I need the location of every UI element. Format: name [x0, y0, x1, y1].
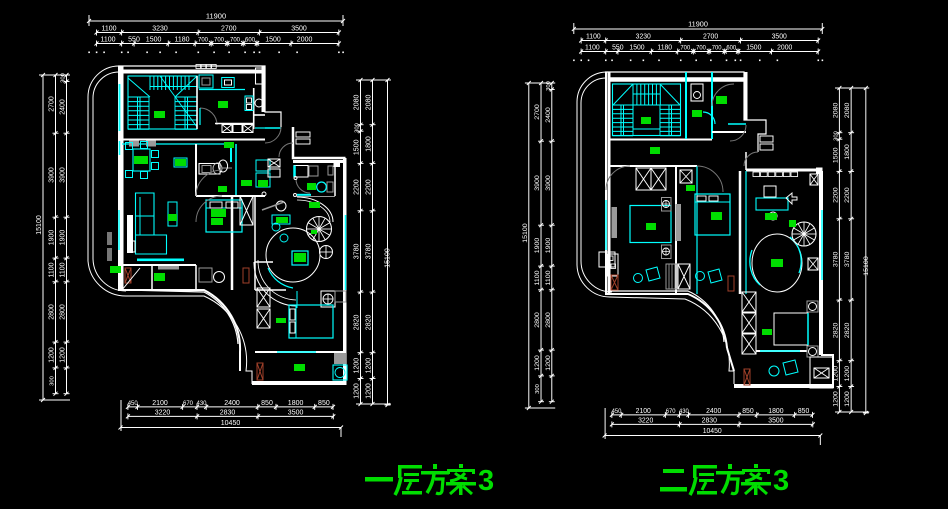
svg-text:700: 700 [696, 46, 706, 52]
svg-text:1100: 1100 [49, 262, 56, 277]
svg-text:15100: 15100 [36, 215, 43, 235]
svg-text:670: 670 [183, 401, 194, 407]
svg-text:3500: 3500 [288, 410, 304, 417]
svg-text:1200: 1200 [534, 355, 541, 371]
svg-text:3780: 3780 [366, 244, 373, 260]
svg-text:2000: 2000 [777, 45, 792, 52]
svg-text:300: 300 [535, 384, 541, 394]
svg-text:2820: 2820 [833, 322, 840, 338]
svg-text:1800: 1800 [768, 408, 783, 415]
svg-text:1100: 1100 [534, 270, 541, 285]
svg-text:430: 430 [679, 409, 689, 415]
svg-text:300: 300 [833, 131, 839, 141]
svg-text:1500: 1500 [354, 139, 361, 155]
svg-text:2100: 2100 [152, 400, 168, 407]
svg-text:450: 450 [612, 409, 622, 415]
svg-text:2100: 2100 [636, 408, 651, 415]
svg-text:3780: 3780 [833, 251, 840, 267]
svg-text:1900: 1900 [60, 230, 67, 246]
svg-text:2000: 2000 [297, 37, 313, 44]
svg-text:2800: 2800 [60, 304, 67, 320]
svg-text:1100: 1100 [100, 37, 115, 44]
svg-text:1500: 1500 [629, 45, 644, 52]
svg-text:1200: 1200 [366, 383, 373, 399]
svg-text:1100: 1100 [586, 34, 601, 41]
svg-text:1900: 1900 [545, 238, 552, 254]
svg-text:2800: 2800 [545, 312, 552, 328]
svg-text:2700: 2700 [49, 96, 56, 112]
svg-text:3900: 3900 [49, 167, 56, 183]
svg-text:1500: 1500 [833, 147, 840, 163]
svg-text:3500: 3500 [291, 26, 307, 33]
svg-text:600: 600 [245, 38, 256, 44]
svg-text:1100: 1100 [60, 262, 67, 277]
svg-text:2820: 2820 [366, 315, 373, 331]
svg-text:1500: 1500 [746, 45, 761, 52]
svg-text:700: 700 [214, 38, 225, 44]
svg-text:300: 300 [50, 376, 56, 386]
svg-text:1100: 1100 [585, 45, 600, 52]
svg-text:1100: 1100 [545, 270, 552, 285]
svg-text:600: 600 [726, 46, 736, 52]
svg-text:3780: 3780 [354, 244, 361, 260]
svg-text:2080: 2080 [354, 95, 361, 111]
svg-text:3780: 3780 [844, 251, 851, 267]
svg-text:10450: 10450 [221, 420, 241, 427]
svg-text:2700: 2700 [703, 34, 718, 41]
svg-text:2700: 2700 [534, 104, 541, 120]
svg-text:3: 3 [478, 465, 494, 497]
svg-text:2080: 2080 [833, 102, 840, 118]
svg-text:2080: 2080 [366, 95, 373, 111]
svg-text:1180: 1180 [174, 37, 189, 44]
svg-text:1200: 1200 [844, 366, 851, 382]
svg-text:3220: 3220 [155, 410, 171, 417]
svg-text:2400: 2400 [224, 400, 240, 407]
svg-text:2830: 2830 [702, 418, 717, 425]
svg-text:1500: 1500 [146, 37, 162, 44]
svg-text:700: 700 [680, 46, 690, 52]
svg-text:3500: 3500 [768, 418, 783, 425]
svg-text:300: 300 [355, 123, 361, 133]
svg-text:1200: 1200 [366, 358, 373, 374]
svg-text:1900: 1900 [534, 238, 541, 254]
svg-text:2830: 2830 [220, 410, 236, 417]
svg-text:3220: 3220 [638, 418, 653, 425]
svg-text:2700: 2700 [221, 26, 237, 33]
svg-text:850: 850 [318, 400, 330, 407]
svg-text:1200: 1200 [354, 383, 361, 399]
svg-text:430: 430 [196, 401, 207, 407]
svg-text:2200: 2200 [844, 187, 851, 203]
svg-text:550: 550 [128, 37, 140, 44]
svg-text:2820: 2820 [844, 322, 851, 338]
svg-text:700: 700 [230, 38, 241, 44]
svg-text:2400: 2400 [545, 107, 552, 123]
svg-text:2400: 2400 [706, 408, 721, 415]
svg-text:2080: 2080 [844, 102, 851, 118]
svg-text:2200: 2200 [833, 187, 840, 203]
svg-text:670: 670 [666, 409, 676, 415]
svg-text:1200: 1200 [60, 347, 67, 363]
svg-text:3900: 3900 [545, 175, 552, 191]
svg-text:2200: 2200 [366, 179, 373, 195]
svg-text:1200: 1200 [49, 347, 56, 363]
svg-text:2800: 2800 [49, 304, 56, 320]
svg-text:10450: 10450 [703, 428, 722, 435]
svg-text:1200: 1200 [844, 391, 851, 407]
svg-text:1180: 1180 [657, 45, 672, 52]
svg-text:2820: 2820 [354, 315, 361, 331]
svg-text:3: 3 [773, 465, 789, 497]
svg-text:11900: 11900 [206, 12, 226, 21]
svg-text:1100: 1100 [101, 26, 116, 33]
svg-text:700: 700 [712, 46, 722, 52]
svg-text:1200: 1200 [354, 358, 361, 374]
svg-text:3230: 3230 [636, 34, 651, 41]
svg-text:1900: 1900 [49, 230, 56, 246]
svg-text:1500: 1500 [265, 37, 281, 44]
svg-text:2400: 2400 [60, 99, 67, 115]
svg-text:15100: 15100 [863, 256, 870, 276]
svg-text:11900: 11900 [688, 19, 708, 28]
svg-text:550: 550 [612, 45, 624, 52]
svg-text:2800: 2800 [534, 312, 541, 328]
svg-text:2200: 2200 [354, 179, 361, 195]
svg-text:15100: 15100 [522, 223, 529, 243]
svg-text:450: 450 [128, 401, 139, 407]
svg-text:850: 850 [798, 408, 810, 415]
svg-text:850: 850 [261, 400, 273, 407]
svg-text:15100: 15100 [385, 248, 392, 268]
svg-text:850: 850 [742, 408, 754, 415]
svg-text:1200: 1200 [833, 391, 840, 407]
svg-text:1800: 1800 [288, 400, 304, 407]
svg-text:3900: 3900 [60, 167, 67, 183]
svg-text:1800: 1800 [366, 136, 373, 152]
svg-text:1200: 1200 [545, 355, 552, 371]
svg-text:1800: 1800 [844, 144, 851, 160]
svg-text:3230: 3230 [152, 26, 168, 33]
svg-text:3500: 3500 [772, 34, 787, 41]
svg-text:700: 700 [198, 38, 209, 44]
svg-text:3900: 3900 [534, 175, 541, 191]
